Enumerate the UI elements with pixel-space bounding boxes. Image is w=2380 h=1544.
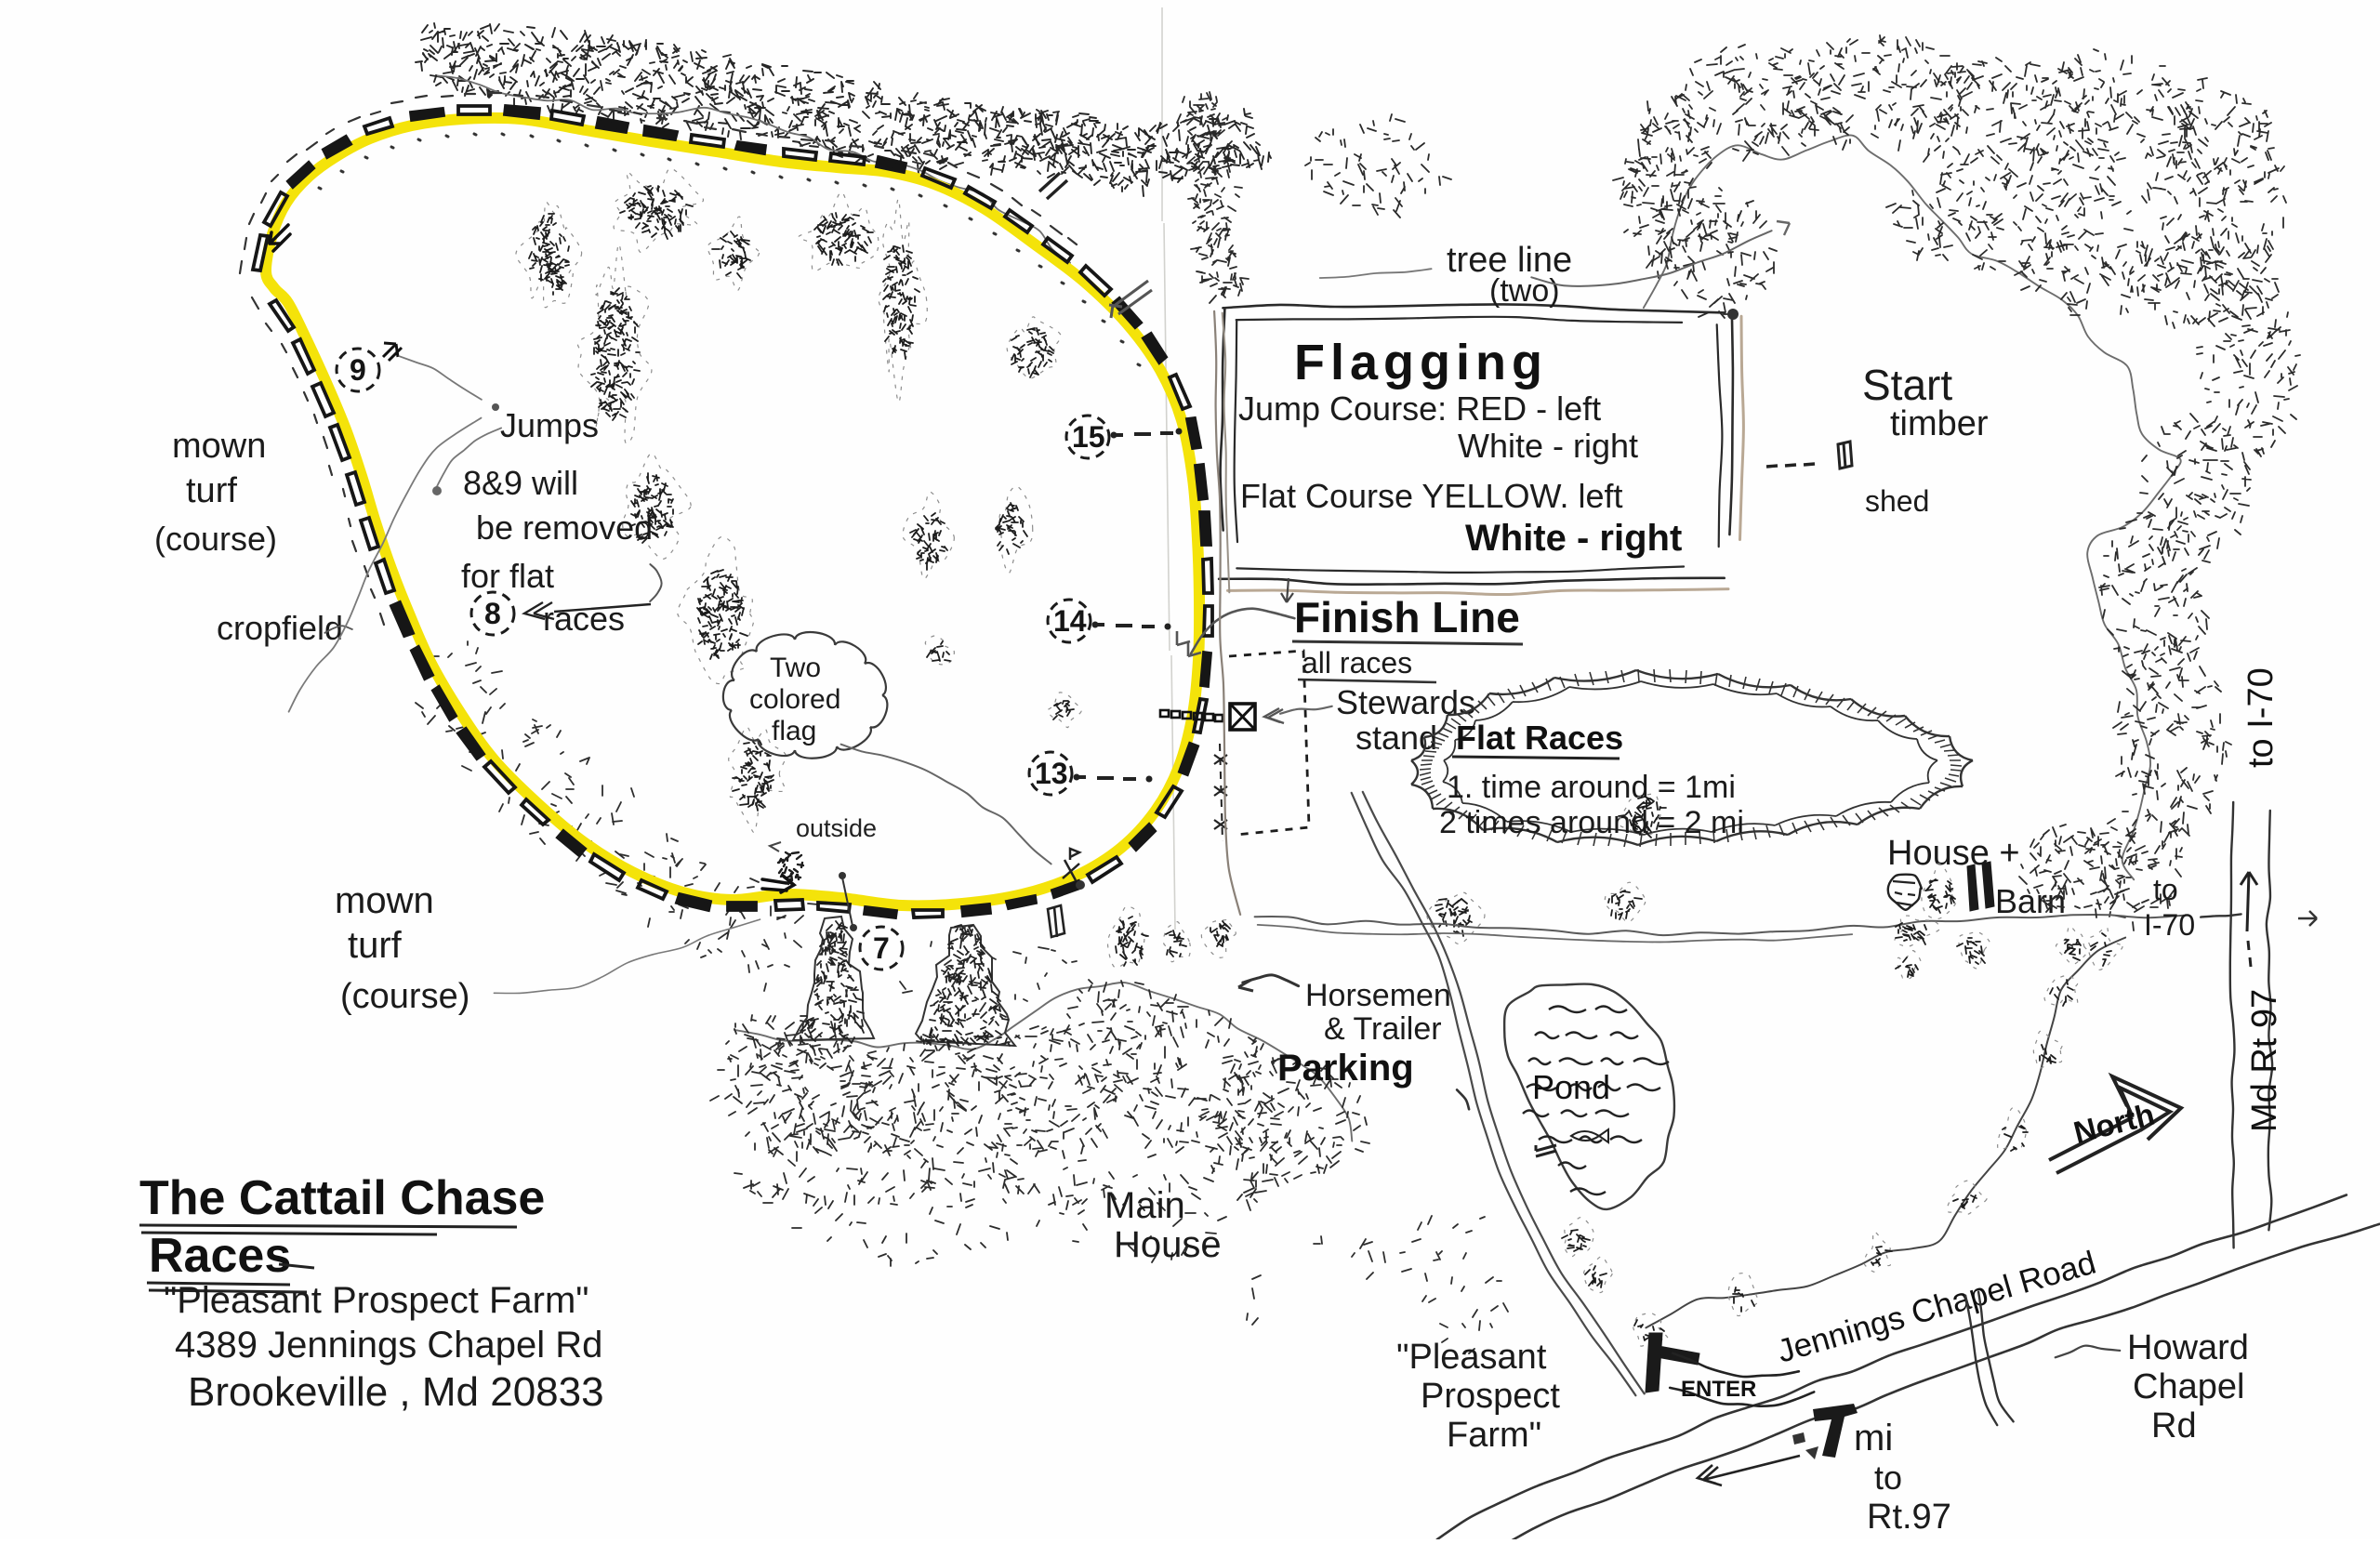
svg-text:turf: turf: [348, 925, 403, 966]
svg-text:to: to: [1874, 1458, 1902, 1497]
svg-text:Pond: Pond: [1532, 1068, 1610, 1106]
svg-text:4389 Jennings Chapel Rd: 4389 Jennings Chapel Rd: [175, 1325, 602, 1366]
svg-text:White - right: White - right: [1465, 518, 1682, 559]
svg-text:8: 8: [484, 597, 501, 630]
svg-text:White - right: White - right: [1458, 427, 1638, 465]
svg-text:to I-70: to I-70: [2241, 667, 2281, 768]
svg-text:shed: shed: [1865, 484, 1929, 518]
svg-text:Flat Course YELLOW. left: Flat Course YELLOW. left: [1240, 477, 1623, 515]
svg-text:all races: all races: [1302, 646, 1412, 680]
svg-text:Flat Races: Flat Races: [1456, 719, 1623, 757]
svg-text:Howard: Howard: [2127, 1328, 2249, 1367]
svg-text:Races: Races: [149, 1229, 291, 1283]
svg-text:I-70: I-70: [2144, 908, 2195, 942]
svg-text:"Pleasant Prospect Farm": "Pleasant Prospect Farm": [164, 1280, 588, 1321]
svg-text:9: 9: [350, 353, 366, 387]
svg-text:outside: outside: [796, 814, 877, 842]
svg-text:(course): (course): [340, 977, 469, 1016]
svg-text:be removed: be removed: [476, 508, 653, 547]
svg-text:8&9 will: 8&9 will: [463, 464, 578, 502]
svg-text:Jump Course: RED - left: Jump Course: RED - left: [1238, 389, 1601, 428]
svg-text:Barn: Barn: [1995, 882, 2066, 920]
svg-text:Brookeville , Md 20833: Brookeville , Md 20833: [188, 1369, 604, 1415]
svg-text:(course): (course): [154, 520, 277, 558]
svg-text:Md Rt 97: Md Rt 97: [2245, 989, 2284, 1132]
svg-text:colored: colored: [749, 684, 840, 715]
svg-text:mown: mown: [172, 427, 266, 466]
svg-text:ENTER: ENTER: [1681, 1377, 1756, 1402]
svg-text:Jumps: Jumps: [500, 406, 599, 444]
svg-text:Chapel: Chapel: [2133, 1367, 2244, 1406]
svg-text:Two: Two: [770, 653, 821, 683]
svg-text:races: races: [543, 600, 625, 638]
svg-text:timber: timber: [1890, 404, 1989, 443]
svg-text:Main: Main: [1104, 1185, 1185, 1226]
svg-text:13: 13: [1035, 757, 1068, 790]
svg-text:1. time around = 1mi: 1. time around = 1mi: [1447, 770, 1736, 805]
svg-text:Parking: Parking: [1277, 1048, 1414, 1089]
svg-text:(two): (two): [1489, 273, 1560, 309]
svg-text:"Pleasant: "Pleasant: [1396, 1338, 1547, 1377]
svg-text:Prospect: Prospect: [1421, 1377, 1560, 1416]
svg-text:Horsemen: Horsemen: [1305, 978, 1451, 1013]
svg-text:Finish Line: Finish Line: [1294, 593, 1520, 641]
svg-text:turf: turf: [186, 471, 237, 510]
svg-text:to: to: [2153, 873, 2178, 906]
svg-text:House +: House +: [1887, 834, 2020, 873]
svg-text:flag: flag: [772, 716, 816, 746]
svg-text:2 times around = 2 mi: 2 times around = 2 mi: [1439, 805, 1744, 840]
svg-text:7: 7: [873, 931, 890, 965]
svg-text:14: 14: [1053, 604, 1087, 638]
svg-text:Rd: Rd: [2151, 1406, 2197, 1445]
svg-text:The Cattail Chase: The Cattail Chase: [139, 1171, 545, 1225]
svg-text:Start: Start: [1862, 361, 1952, 409]
svg-text:for flat: for flat: [461, 557, 554, 595]
svg-text:mi: mi: [1854, 1418, 1893, 1458]
svg-text:mown: mown: [335, 880, 434, 921]
svg-text:House: House: [1114, 1224, 1222, 1265]
svg-text:15: 15: [1072, 420, 1105, 454]
svg-text:cropfield: cropfield: [217, 609, 343, 647]
svg-text:Farm": Farm": [1447, 1416, 1541, 1455]
svg-text:Rt.97: Rt.97: [1867, 1498, 1951, 1537]
svg-text:Flagging: Flagging: [1294, 335, 1548, 390]
svg-text:& Trailer: & Trailer: [1324, 1011, 1442, 1047]
